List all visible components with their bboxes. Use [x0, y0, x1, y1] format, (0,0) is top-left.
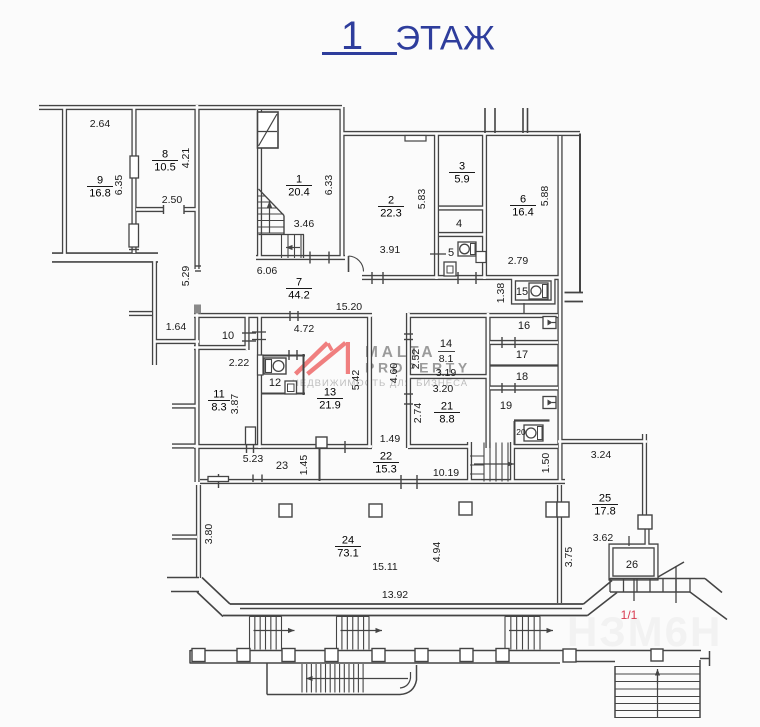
svg-text:3.62: 3.62 [593, 532, 614, 544]
svg-text:6.06: 6.06 [257, 265, 278, 277]
svg-text:15.3: 15.3 [375, 464, 396, 476]
svg-text:12: 12 [269, 377, 281, 389]
svg-text:3.24: 3.24 [591, 449, 612, 461]
svg-text:18: 18 [516, 371, 528, 383]
svg-text:5.88: 5.88 [539, 186, 551, 207]
svg-text:5: 5 [448, 247, 454, 259]
svg-text:23: 23 [276, 460, 288, 472]
svg-text:15.20: 15.20 [336, 301, 362, 313]
svg-text:20: 20 [516, 427, 526, 437]
svg-text:1/1: 1/1 [621, 608, 638, 622]
svg-text:6.33: 6.33 [323, 175, 335, 196]
svg-text:10.19: 10.19 [433, 467, 459, 479]
svg-text:4.60: 4.60 [388, 363, 400, 384]
svg-text:5.83: 5.83 [416, 189, 428, 210]
svg-text:ЭТАЖ: ЭТАЖ [395, 20, 495, 58]
svg-text:8: 8 [162, 149, 168, 161]
svg-text:2.22: 2.22 [229, 357, 250, 369]
svg-text:1.38: 1.38 [495, 283, 507, 304]
svg-text:9: 9 [97, 175, 103, 187]
svg-text:26: 26 [626, 559, 638, 571]
svg-text:1.45: 1.45 [298, 455, 310, 476]
svg-text:2.79: 2.79 [508, 255, 529, 267]
svg-text:4: 4 [456, 218, 462, 230]
svg-text:5.9: 5.9 [454, 174, 469, 186]
svg-text:17: 17 [516, 349, 528, 361]
svg-text:19: 19 [500, 400, 512, 412]
svg-text:10.5: 10.5 [154, 162, 175, 174]
svg-text:2.74: 2.74 [412, 403, 424, 424]
svg-text:3.46: 3.46 [294, 218, 315, 230]
svg-text:7: 7 [296, 277, 302, 289]
svg-text:20.4: 20.4 [288, 187, 309, 199]
svg-text:3.75: 3.75 [563, 547, 575, 568]
svg-text:2: 2 [388, 195, 394, 207]
svg-text:8.3: 8.3 [211, 402, 226, 414]
svg-text:НЗМ6Н: НЗМ6Н [567, 608, 722, 655]
svg-text:16.8: 16.8 [89, 188, 110, 200]
svg-text:16: 16 [518, 320, 530, 332]
svg-text:17.8: 17.8 [594, 506, 615, 518]
svg-text:2.64: 2.64 [90, 118, 111, 130]
svg-text:16.4: 16.4 [512, 207, 533, 219]
svg-text:3.19: 3.19 [436, 367, 457, 379]
svg-text:5.29: 5.29 [180, 266, 192, 287]
svg-text:8.1: 8.1 [439, 353, 454, 365]
svg-text:1.49: 1.49 [380, 433, 401, 445]
svg-text:MALTA: MALTA [365, 344, 436, 361]
svg-text:44.2: 44.2 [288, 290, 309, 302]
svg-text:22.3: 22.3 [380, 208, 401, 220]
svg-text:4.21: 4.21 [180, 148, 192, 169]
svg-text:2.50: 2.50 [162, 194, 183, 206]
svg-text:6.35: 6.35 [113, 175, 125, 196]
svg-text:10: 10 [222, 330, 234, 342]
svg-text:15.11: 15.11 [372, 561, 398, 573]
svg-text:24: 24 [342, 535, 354, 547]
svg-text:5.42: 5.42 [350, 370, 362, 391]
svg-text:21.9: 21.9 [319, 400, 340, 412]
svg-text:4.72: 4.72 [294, 323, 315, 335]
svg-text:73.1: 73.1 [337, 548, 358, 560]
svg-text:3.80: 3.80 [203, 524, 215, 545]
svg-text:13.92: 13.92 [382, 589, 408, 601]
svg-text:5.23: 5.23 [243, 453, 264, 465]
svg-text:21: 21 [441, 401, 453, 413]
svg-text:1: 1 [341, 14, 363, 58]
svg-text:22: 22 [380, 451, 392, 463]
svg-text:8.8: 8.8 [439, 414, 454, 426]
svg-text:1.64: 1.64 [166, 321, 187, 333]
svg-text:14: 14 [440, 338, 452, 350]
svg-text:3.20: 3.20 [433, 383, 454, 395]
svg-text:3.91: 3.91 [380, 244, 401, 256]
svg-text:3: 3 [459, 161, 465, 173]
svg-text:1.50: 1.50 [540, 453, 552, 474]
svg-text:13: 13 [324, 387, 336, 399]
svg-text:4.94: 4.94 [431, 542, 443, 563]
svg-text:6: 6 [520, 194, 526, 206]
svg-text:11: 11 [213, 389, 224, 401]
svg-text:1: 1 [296, 174, 302, 186]
svg-text:15: 15 [516, 286, 528, 298]
svg-text:3.87: 3.87 [229, 394, 241, 415]
svg-text:2.52: 2.52 [410, 349, 422, 370]
svg-text:25: 25 [599, 493, 611, 505]
